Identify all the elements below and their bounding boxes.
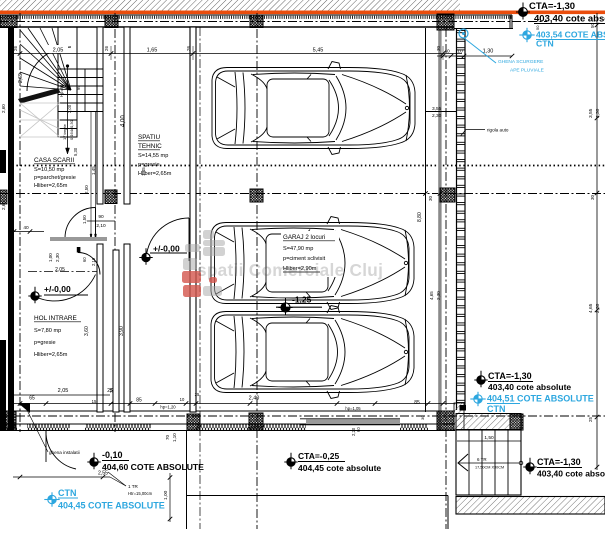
svg-text:4,00: 4,00 [121, 115, 127, 127]
svg-text:26: 26 [13, 45, 18, 51]
svg-text:Htr=15,00cm: Htr=15,00cm [128, 491, 153, 496]
svg-text:S=47,90 mp: S=47,90 mp [283, 246, 313, 252]
svg-text:2,05: 2,05 [53, 48, 64, 54]
svg-text:40: 40 [23, 225, 29, 231]
svg-text:2,00: 2,00 [67, 104, 72, 113]
svg-text:95: 95 [76, 85, 81, 90]
svg-text:hp=1,20: hp=1,20 [160, 405, 176, 410]
svg-text:Hp=90: Hp=90 [59, 84, 64, 97]
svg-text:17 trepte: 17 trepte [62, 123, 67, 140]
svg-text:4,65: 4,65 [588, 303, 594, 313]
svg-text:1,00: 1,00 [48, 253, 53, 262]
svg-text:1,00: 1,00 [163, 490, 169, 500]
svg-text:Hliber=2,65m: Hliber=2,65m [34, 352, 68, 358]
svg-text:GHENA SCURGERE: GHENA SCURGERE [498, 59, 543, 65]
svg-text:70: 70 [165, 434, 170, 440]
svg-text:17,50CM X30CM: 17,50CM X30CM [475, 466, 504, 470]
svg-text:2,05: 2,05 [55, 267, 65, 273]
svg-text:15: 15 [92, 399, 97, 404]
svg-text:2,60: 2,60 [1, 104, 6, 113]
svg-text:APE PLUVIALE: APE PLUVIALE [510, 68, 544, 74]
svg-text:30: 30 [420, 415, 425, 420]
svg-text:S=14,55 mp: S=14,55 mp [138, 153, 168, 159]
svg-text:Hliber=2,65m: Hliber=2,65m [138, 171, 172, 177]
svg-text:404,45 cote absolute: 404,45 cote absolute [298, 463, 381, 473]
svg-text:ghena instalatii: ghena instalatii [49, 450, 80, 455]
svg-text:26: 26 [109, 388, 114, 393]
svg-text:2,40: 2,40 [249, 396, 260, 402]
svg-text:CTN: CTN [536, 39, 554, 49]
svg-text:2,50: 2,50 [84, 185, 89, 194]
svg-text:85: 85 [414, 400, 420, 406]
svg-text:CTA=-1,30: CTA=-1,30 [488, 371, 532, 381]
svg-text:2,10: 2,10 [91, 257, 96, 266]
svg-text:1,65: 1,65 [147, 48, 158, 54]
svg-text:403,40 cote absolute: 403,40 cote absolute [534, 14, 605, 25]
svg-text:2,60: 2,60 [1, 201, 6, 210]
svg-text:+/-0,00: +/-0,00 [153, 244, 180, 254]
svg-text:p=gresie: p=gresie [34, 340, 56, 346]
svg-text:2,05: 2,05 [58, 388, 69, 394]
svg-text:rigola auto: rigola auto [487, 128, 509, 133]
svg-text:30: 30 [428, 195, 433, 201]
svg-text:10: 10 [180, 397, 185, 402]
svg-text:HOL INTRARE: HOL INTRARE [34, 315, 77, 322]
svg-text:3,90: 3,90 [119, 326, 125, 336]
svg-text:8,80: 8,80 [417, 212, 423, 222]
svg-text:60: 60 [356, 427, 361, 432]
svg-text:-0,10: -0,10 [102, 450, 123, 460]
svg-text:2,30: 2,30 [436, 291, 441, 300]
svg-text:10: 10 [457, 49, 463, 55]
svg-text:CTN: CTN [487, 404, 506, 414]
svg-text:25: 25 [588, 416, 593, 422]
svg-text:60: 60 [82, 257, 87, 262]
svg-text:0,164x0,30: 0,164x0,30 [69, 119, 74, 140]
svg-text:p=parchet/gresie: p=parchet/gresie [34, 175, 76, 181]
svg-text:1,10: 1,10 [172, 433, 177, 442]
svg-text:4,65: 4,65 [429, 291, 434, 300]
svg-text:1,45: 1,45 [91, 166, 96, 175]
svg-text:3,55: 3,55 [588, 108, 594, 118]
svg-text:90: 90 [98, 214, 104, 220]
svg-text:CTA=-1,30: CTA=-1,30 [537, 457, 581, 467]
svg-text:p=gresie: p=gresie [138, 162, 160, 168]
svg-text:2,30: 2,30 [595, 108, 601, 118]
svg-text:3,60: 3,60 [84, 326, 90, 336]
svg-text:25: 25 [195, 392, 200, 397]
svg-text:40: 40 [444, 49, 450, 55]
svg-text:404,45 COTE ABSOLUTE: 404,45 COTE ABSOLUTE [58, 501, 165, 511]
svg-text:85: 85 [136, 398, 142, 404]
svg-text:+/-0,00: +/-0,00 [44, 284, 71, 294]
svg-text:2,30: 2,30 [55, 253, 60, 262]
svg-text:403,40 cote absolute: 403,40 cote absolute [537, 469, 605, 479]
svg-text:2,30: 2,30 [432, 113, 442, 119]
svg-text:1,50: 1,50 [82, 215, 87, 224]
svg-text:404,60 COTE ABSOLUTE: 404,60 COTE ABSOLUTE [102, 462, 204, 472]
svg-text:TEHNIC: TEHNIC [138, 143, 162, 150]
svg-text:30: 30 [436, 45, 441, 51]
svg-text:SPATIU: SPATIU [138, 134, 161, 141]
svg-text:CASA SCARII: CASA SCARII [34, 157, 74, 164]
svg-text:404,51 COTE ABSOLUTE: 404,51 COTE ABSOLUTE [487, 394, 594, 404]
svg-text:CTN: CTN [58, 488, 77, 498]
svg-text:GARAJ 2 locuri: GARAJ 2 locuri [283, 234, 325, 241]
svg-text:2,69: 2,69 [18, 73, 24, 83]
svg-text:5,45: 5,45 [313, 48, 324, 54]
svg-text:6 TR: 6 TR [477, 457, 487, 462]
svg-text:30: 30 [590, 194, 595, 200]
svg-text:26: 26 [186, 45, 191, 51]
svg-text:403,40 cote absolute: 403,40 cote absolute [488, 382, 571, 392]
svg-text:2,10: 2,10 [96, 223, 106, 229]
svg-text:65: 65 [29, 396, 35, 402]
svg-text:S=7,80 mp: S=7,80 mp [34, 328, 61, 334]
svg-text:CTA=-0,25: CTA=-0,25 [298, 451, 339, 461]
svg-text:1 TR: 1 TR [128, 484, 139, 489]
svg-text:2,30: 2,30 [595, 303, 601, 313]
svg-text:Hliber=2,65m: Hliber=2,65m [34, 183, 68, 189]
svg-text:-1,25: -1,25 [292, 295, 312, 305]
svg-text:hp=1,05: hp=1,05 [345, 406, 361, 411]
svg-text:CTA=-1,30: CTA=-1,30 [529, 1, 575, 12]
svg-text:5,30: 5,30 [73, 147, 78, 156]
svg-text:S=10,50 mp: S=10,50 mp [34, 167, 64, 173]
svg-text:26: 26 [104, 45, 109, 51]
svg-text:spatii Comerciale Cluj: spatii Comerciale Cluj [197, 260, 383, 280]
svg-text:1,50: 1,50 [484, 435, 494, 441]
